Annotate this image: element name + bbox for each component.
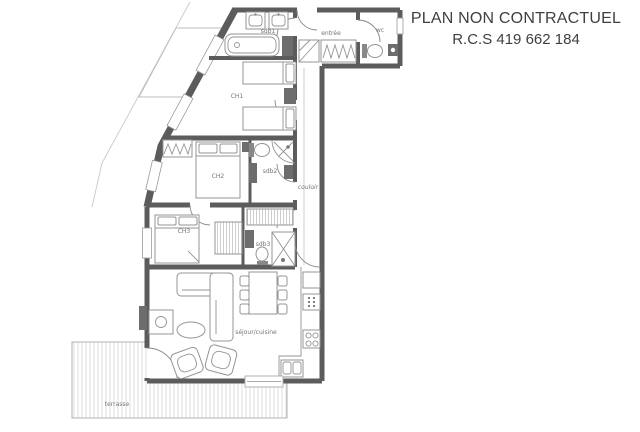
closet [215,222,242,254]
washbasin-unit [249,163,257,183]
washbasin [269,12,288,29]
entry-fixtures [299,40,356,62]
toilet [362,44,383,58]
bathtub [225,34,279,56]
floor-plan: sdb1 entrée wc CH1 CH2 sdb2 couloir CH3 … [0,0,640,432]
nightstand [284,88,296,104]
room-label-ch2: CH2 [212,173,225,180]
nightstand [242,142,249,152]
washbasin-unit [245,230,254,248]
fridge [303,272,320,288]
room-label-sejour: séjour/cuisine [235,329,277,336]
floor-plan-page: { "header": { "line1": "PLAN NON CONTRAC… [0,0,640,432]
dining-table [240,272,287,314]
wardrobe [321,40,356,62]
fireplace-stove [149,310,173,334]
sliding-bay-door [245,376,283,387]
bathroom-cabinet [282,36,293,56]
room-label-entree: entrée [321,30,341,37]
shower [272,232,295,266]
corner-sink [388,44,398,56]
room-label-wc: wc [376,27,384,34]
double-bed [196,142,240,198]
wc-window [397,18,403,34]
room-label-sdb2: sdb2 [263,168,278,175]
room-label-sdb3: sdb3 [256,241,271,248]
double-bed [155,215,199,263]
closet [299,40,319,62]
single-bed [243,62,296,84]
storage-unit [247,209,293,225]
towel-radiator [284,165,293,179]
room-label-couloir: couloir [298,184,319,191]
coffee-table [177,322,205,338]
room-label-sdb1: sdb1 [261,28,276,35]
wardrobe [163,140,192,157]
room-label-terrasse: terrasse [105,401,130,408]
hob [303,330,320,348]
room-label-ch1: CH1 [231,93,244,100]
flue [139,306,147,330]
washbasin [246,12,265,29]
single-bed [243,107,296,130]
toilet [249,143,270,157]
oven [303,294,320,310]
room-label-ch3: CH3 [178,228,191,235]
kitchen-sink [281,360,303,377]
toilet [256,247,268,265]
